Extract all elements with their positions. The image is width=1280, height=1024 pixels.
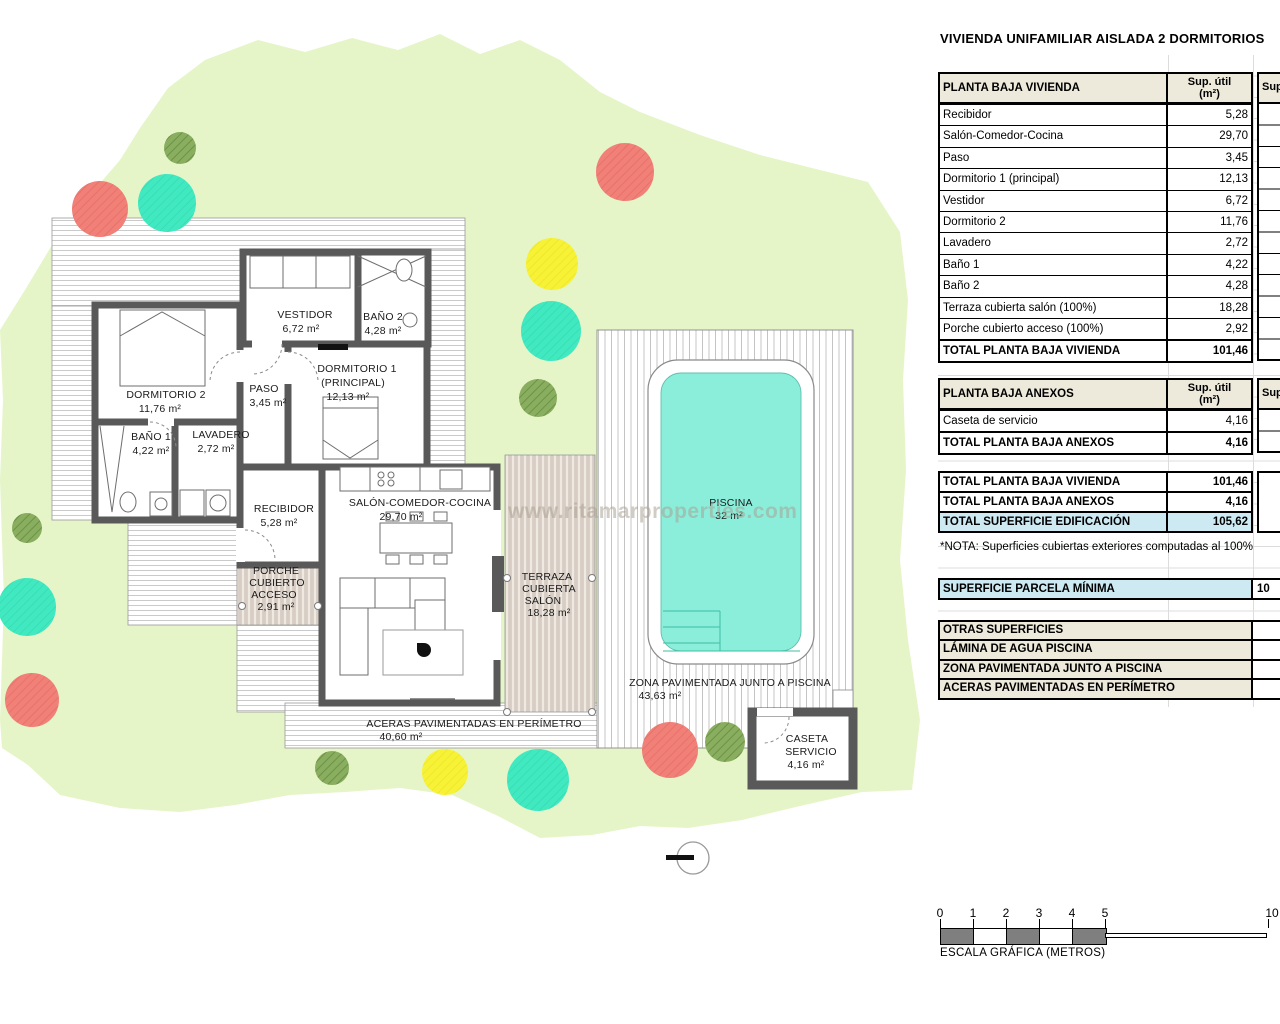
tree-symbol bbox=[519, 379, 557, 417]
scale-bar-extension bbox=[1105, 933, 1267, 938]
tree-symbol bbox=[596, 143, 654, 201]
label-paso: PASO bbox=[249, 383, 278, 395]
tree-symbol bbox=[0, 578, 56, 636]
table-header-label: PLANTA BAJA VIVIENDA bbox=[940, 74, 1166, 102]
table-row: Vestidor6,72 bbox=[940, 190, 1251, 211]
scale-tick bbox=[940, 919, 941, 928]
label-recibidor: RECIBIDOR bbox=[254, 503, 314, 515]
label-zona-pavimentada: ZONA PAVIMENTADA JUNTO A PISCINA bbox=[629, 677, 831, 689]
label-caseta-area: 4,16 m² bbox=[788, 759, 825, 771]
table-row: Caseta de servicio4,16 bbox=[940, 410, 1251, 431]
label-dorm1-area: 12,13 m² bbox=[326, 391, 369, 403]
cut-column-table2: Sup bbox=[1257, 378, 1280, 453]
label-paso-area: 3,45 m² bbox=[250, 397, 287, 409]
label-bano1: BAÑO 1 bbox=[131, 430, 171, 443]
scale-tick bbox=[1006, 919, 1007, 928]
tree-symbol bbox=[422, 749, 468, 795]
scale-tick bbox=[973, 919, 974, 928]
table-row: Terraza cubierta salón (100%)18,28 bbox=[940, 297, 1251, 318]
tree-symbol bbox=[5, 673, 59, 727]
table-row: Baño 14,22 bbox=[940, 254, 1251, 275]
floor-plan-sheet: VESTIDOR 6,72 m² BAÑO 2 4,28 m² DORMITOR… bbox=[0, 0, 1280, 1024]
table-planta-baja-vivienda: PLANTA BAJA VIVIENDA Sup. útil (m²) Reci… bbox=[938, 72, 1253, 363]
label-dorm1: DORMITORIO 1 bbox=[317, 363, 396, 375]
label-porche-2: CUBIERTO bbox=[249, 577, 304, 589]
scale-tick bbox=[1268, 919, 1269, 928]
label-porche-area: 2,91 m² bbox=[258, 601, 295, 613]
table-row: Dormitorio 1 (principal)12,13 bbox=[940, 168, 1251, 189]
tree-symbol bbox=[526, 238, 578, 290]
label-aceras: ACERAS PAVIMENTADAS EN PERÍMETRO bbox=[366, 717, 581, 730]
label-caseta-1: CASETA bbox=[786, 733, 828, 745]
gridline-vertical bbox=[1253, 55, 1254, 707]
summary-row-vivienda: TOTAL PLANTA BAJA VIVIENDA 101,46 bbox=[938, 471, 1253, 493]
scale-tick bbox=[1039, 919, 1040, 928]
watermark: www.ritamarproperties.com bbox=[508, 500, 788, 524]
label-salon: SALÓN-COMEDOR-COCINA bbox=[349, 496, 491, 509]
sheet-title: VIVIENDA UNIFAMILIAR AISLADA 2 DORMITORI… bbox=[940, 31, 1265, 46]
label-terraza-area: 18,28 m² bbox=[527, 607, 570, 619]
table-row: Baño 24,28 bbox=[940, 275, 1251, 296]
scale-number: 5 bbox=[1102, 906, 1109, 920]
tree-symbol bbox=[138, 174, 196, 232]
tree-symbol bbox=[507, 749, 569, 811]
table-header-sup-util: Sup. útil (m²) bbox=[1166, 380, 1251, 408]
table-row: Paso3,45 bbox=[940, 147, 1251, 168]
tree-symbol bbox=[164, 132, 196, 164]
scale-tick bbox=[1105, 919, 1106, 928]
tree-symbol bbox=[12, 513, 42, 543]
label-dorm1-2: (PRINCIPAL) bbox=[321, 377, 385, 389]
table-header-label: PLANTA BAJA ANEXOS bbox=[940, 380, 1166, 408]
label-dorm2-area: 11,76 m² bbox=[139, 403, 182, 415]
label-bano2: BAÑO 2 bbox=[363, 310, 403, 323]
label-aceras-area: 40,60 m² bbox=[379, 731, 422, 743]
scale-number: 0 bbox=[937, 906, 944, 920]
note-text: *NOTA: Superficies cubiertas exteriores … bbox=[940, 541, 1253, 553]
summary-row-anexos: TOTAL PLANTA BAJA ANEXOS 4,16 bbox=[938, 491, 1253, 513]
label-porche-3: ACCESO bbox=[251, 589, 297, 601]
table-total-row: TOTAL PLANTA BAJA VIVIENDA101,46 bbox=[940, 339, 1251, 361]
label-lavadero-area: 2,72 m² bbox=[198, 443, 235, 455]
surface-data-panel: VIVIENDA UNIFAMILIAR AISLADA 2 DORMITORI… bbox=[938, 0, 1280, 1024]
tree-symbol bbox=[521, 301, 581, 361]
label-recibidor-area: 5,28 m² bbox=[261, 517, 298, 529]
scale-number: 1 bbox=[970, 906, 977, 920]
table-header-row: PLANTA BAJA VIVIENDA Sup. útil (m²) bbox=[940, 74, 1251, 104]
table-row: ACERAS PAVIMENTADAS EN PERÍMETRO bbox=[938, 678, 1280, 699]
label-caseta-2: SERVICIO bbox=[785, 746, 837, 758]
table-row: LÁMINA DE AGUA PISCINA bbox=[938, 639, 1280, 660]
table-row: Lavadero2,72 bbox=[940, 232, 1251, 253]
tree-symbol bbox=[72, 181, 128, 237]
scale-number: 3 bbox=[1036, 906, 1043, 920]
otras-superficies-table: OTRAS SUPERFICIES LÁMINA DE AGUA PISCINA… bbox=[938, 620, 1280, 700]
scale-caption: ESCALA GRÁFICA (METROS) bbox=[940, 947, 1105, 959]
label-terraza-1: TERRAZA bbox=[522, 571, 572, 583]
table-row: Recibidor5,28 bbox=[940, 104, 1251, 125]
parcela-minima-row: SUPERFICIE PARCELA MÍNIMA 10 bbox=[938, 578, 1280, 600]
tree-symbol bbox=[315, 751, 349, 785]
label-bano2-area: 4,28 m² bbox=[365, 325, 402, 337]
table-header-row: PLANTA BAJA ANEXOS Sup. útil (m²) bbox=[940, 380, 1251, 410]
table-row: ZONA PAVIMENTADA JUNTO A PISCINA bbox=[938, 659, 1280, 680]
label-terraza-2: CUBIERTA bbox=[522, 583, 576, 595]
table-total-row: TOTAL PLANTA BAJA ANEXOS4,16 bbox=[940, 431, 1251, 453]
table-header-sup-util: Sup. útil (m²) bbox=[1166, 74, 1251, 102]
label-porche-1: PORCHE bbox=[253, 565, 299, 577]
label-dorm2: DORMITORIO 2 bbox=[126, 389, 205, 401]
table-row: Porche cubierto acceso (100%)2,92 bbox=[940, 318, 1251, 339]
dorm1-lintel bbox=[318, 344, 348, 350]
scale-bar-segments bbox=[940, 928, 1107, 945]
label-lavadero: LAVADERO bbox=[192, 429, 249, 441]
scale-tick bbox=[1072, 919, 1073, 928]
scale-number: 4 bbox=[1069, 906, 1076, 920]
scale-number: 2 bbox=[1003, 906, 1010, 920]
summary-row-total-edificacion: TOTAL SUPERFICIE EDIFICACIÓN 105,62 bbox=[938, 511, 1253, 533]
label-vestidor: VESTIDOR bbox=[277, 309, 332, 321]
table-row: Dormitorio 211,76 bbox=[940, 211, 1251, 232]
tree-symbol bbox=[642, 722, 698, 778]
survey-marker-icon bbox=[666, 842, 709, 874]
table-row: Salón-Comedor-Cocina29,70 bbox=[940, 125, 1251, 146]
label-bano1-area: 4,22 m² bbox=[133, 445, 170, 457]
cut-column-summary bbox=[1257, 471, 1280, 533]
scale-number: 10 bbox=[1265, 906, 1278, 920]
terrace-pillar bbox=[492, 556, 504, 612]
tree-symbol bbox=[705, 722, 745, 762]
site-plan: VESTIDOR 6,72 m² BAÑO 2 4,28 m² DORMITOR… bbox=[0, 0, 938, 1024]
label-zona-area: 43,63 m² bbox=[638, 690, 681, 702]
label-salon-area: 29,70 m² bbox=[379, 511, 422, 523]
cut-column-table1: Sup bbox=[1257, 72, 1280, 361]
table-row: OTRAS SUPERFICIES bbox=[938, 620, 1280, 641]
label-vestidor-area: 6,72 m² bbox=[283, 323, 320, 335]
table-planta-baja-anexos: PLANTA BAJA ANEXOS Sup. útil (m²) Caseta… bbox=[938, 378, 1253, 455]
label-terraza-3: SALÓN bbox=[525, 594, 562, 607]
